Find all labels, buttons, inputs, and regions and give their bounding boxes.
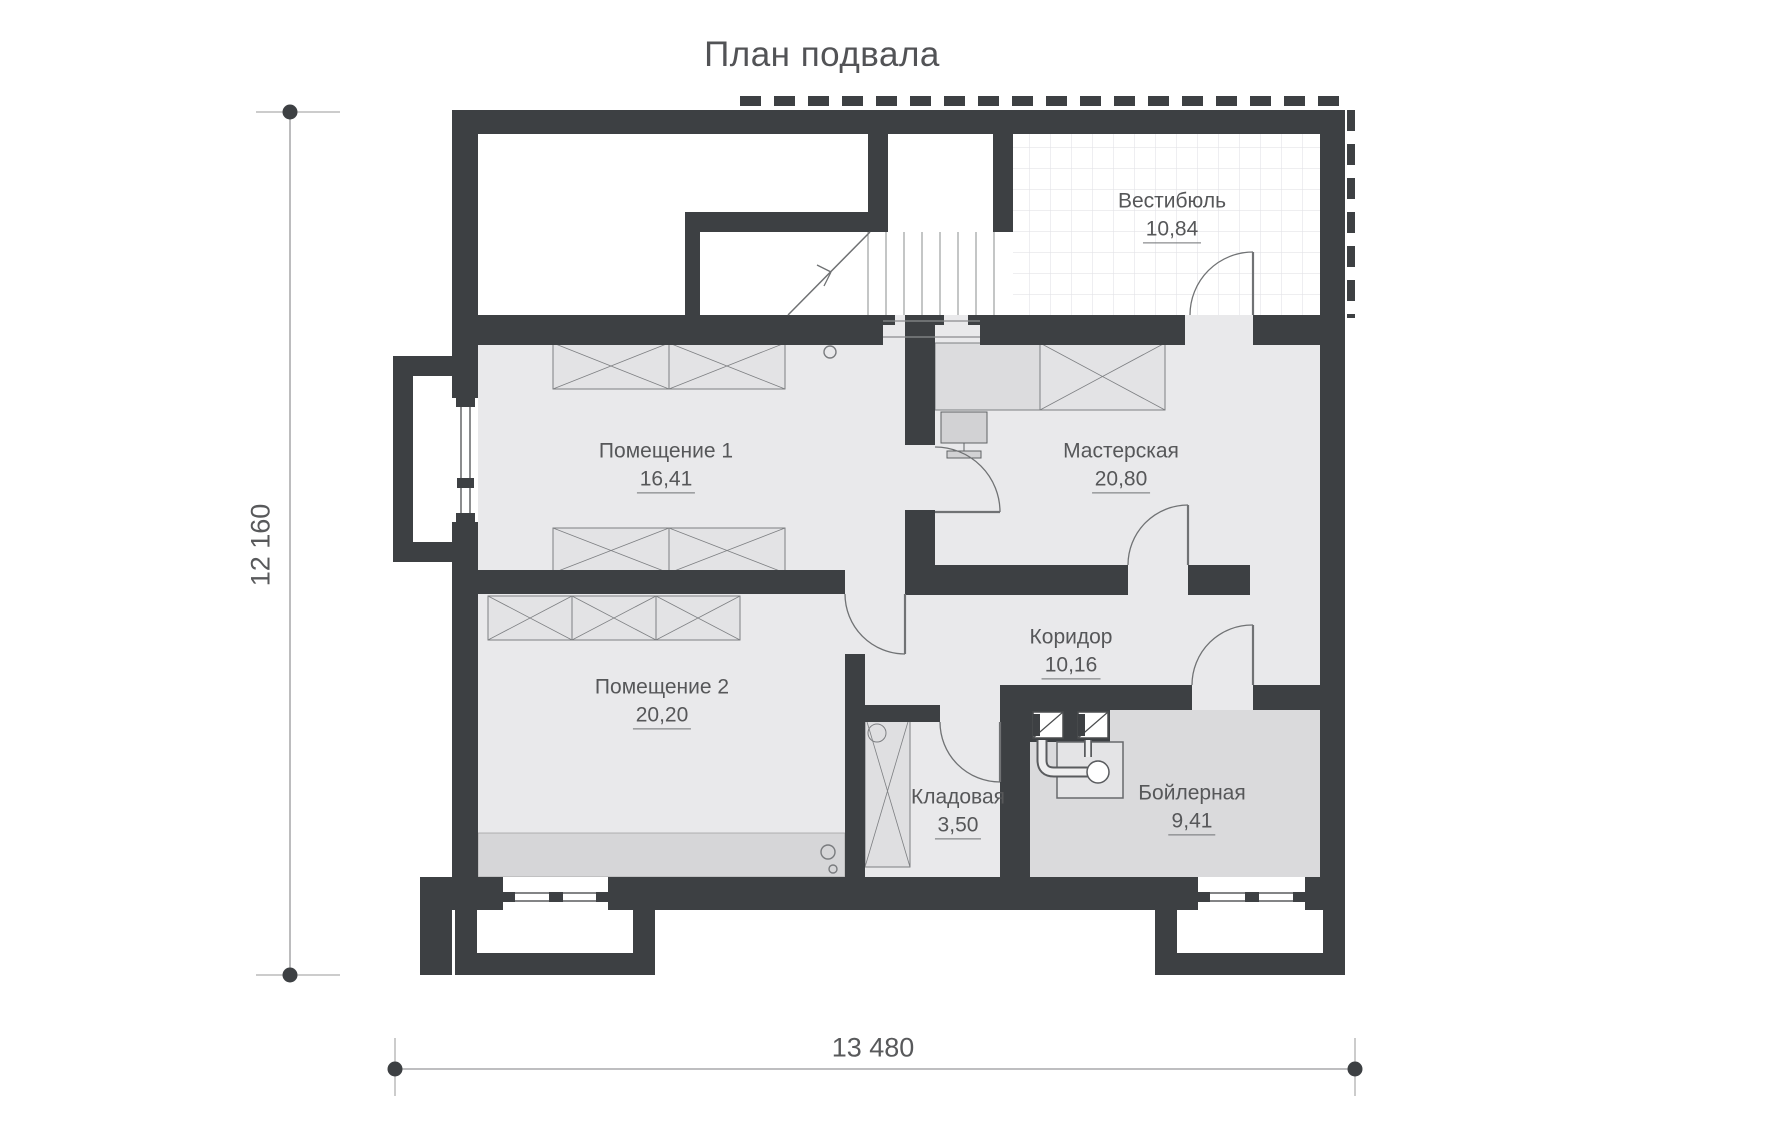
room2-bench [478,833,845,877]
basement-floor-plan [0,0,1772,1144]
vertical-dimension-line [256,105,340,983]
workshop-storage-box [1040,343,1165,410]
window-room2 [503,877,608,910]
computer-monitor-icon [941,412,987,458]
workshop-desk [935,343,1040,410]
horizontal-dimension-line [388,1038,1363,1096]
ventilation-shaft [865,715,910,867]
window-left-bay [452,398,478,522]
window-boiler [1198,877,1305,910]
vestibule-tile-floor [1013,134,1320,315]
storage-boxes-room2 [488,596,740,640]
basement-plan-page: План подвала Вестибюль 10,84 Помещение 1… [0,0,1772,1144]
